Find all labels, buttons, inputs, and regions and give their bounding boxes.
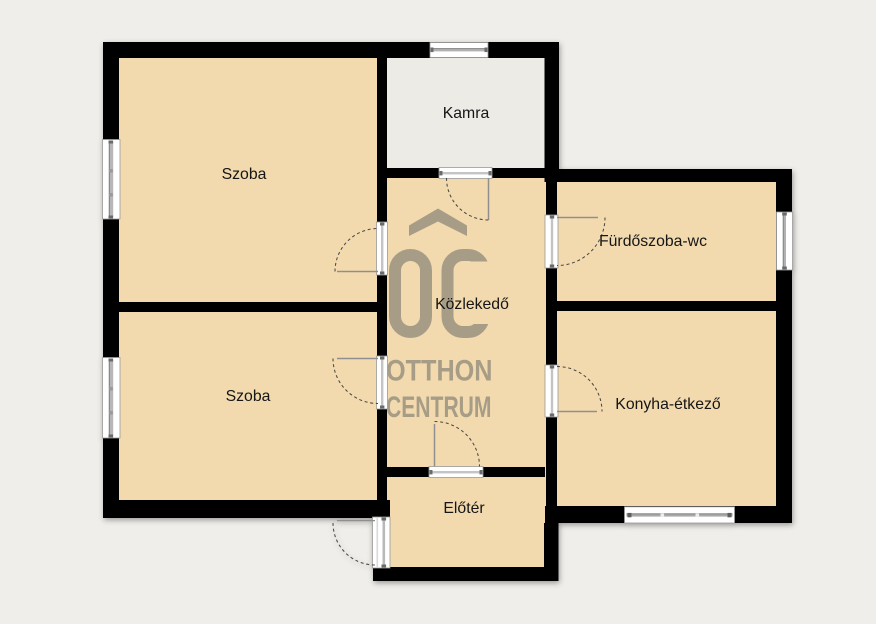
- svg-text:Kamra: Kamra: [443, 105, 490, 122]
- svg-text:Közlekedő: Közlekedő: [435, 296, 509, 313]
- svg-text:Szoba: Szoba: [226, 388, 271, 405]
- svg-text:Konyha-étkező: Konyha-étkező: [615, 396, 721, 413]
- svg-text:Előtér: Előtér: [443, 500, 484, 517]
- svg-text:Szoba: Szoba: [222, 166, 267, 183]
- svg-text:CENTRUM: CENTRUM: [386, 391, 492, 424]
- svg-text:OTTHON: OTTHON: [386, 354, 493, 387]
- svg-text:Fürdőszoba-wc: Fürdőszoba-wc: [599, 233, 707, 250]
